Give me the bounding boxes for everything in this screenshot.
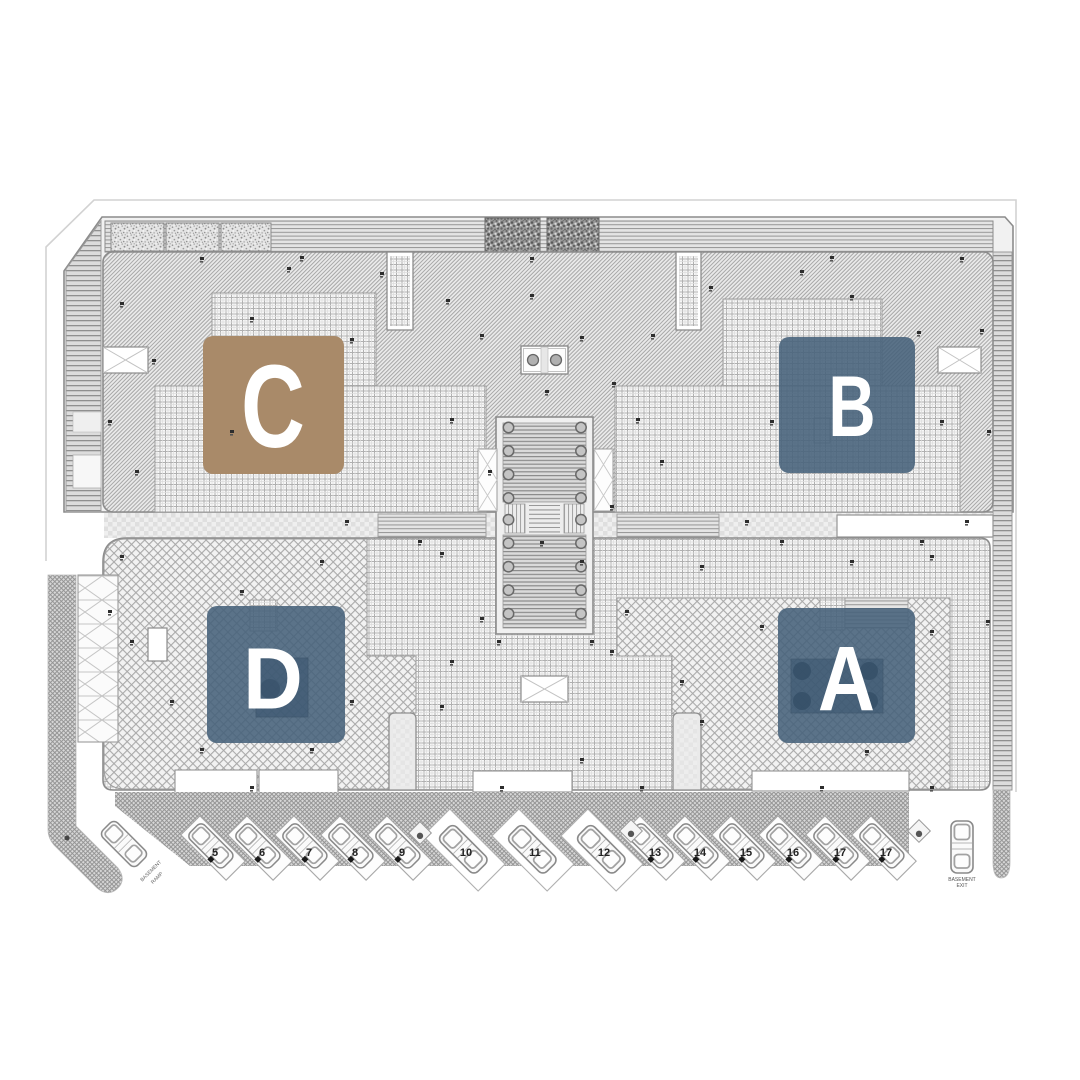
- svg-text:12: 12: [598, 847, 610, 859]
- svg-text:11: 11: [529, 847, 541, 859]
- svg-text:7: 7: [306, 847, 312, 859]
- svg-text:14: 14: [694, 847, 707, 859]
- svg-text:16: 16: [787, 847, 799, 859]
- svg-text:9: 9: [399, 847, 405, 859]
- svg-text:A: A: [818, 627, 875, 730]
- svg-text:17: 17: [880, 847, 892, 859]
- svg-text:C: C: [241, 342, 305, 473]
- svg-text:B: B: [828, 359, 875, 455]
- svg-text:6: 6: [259, 847, 265, 859]
- svg-text:10: 10: [460, 847, 472, 859]
- svg-text:5: 5: [212, 847, 218, 859]
- svg-text:8: 8: [352, 847, 358, 859]
- svg-text:13: 13: [649, 847, 661, 859]
- svg-text:15: 15: [740, 847, 752, 859]
- svg-text:17: 17: [834, 847, 846, 859]
- svg-text:EXIT: EXIT: [956, 883, 967, 889]
- svg-text:D: D: [243, 630, 303, 727]
